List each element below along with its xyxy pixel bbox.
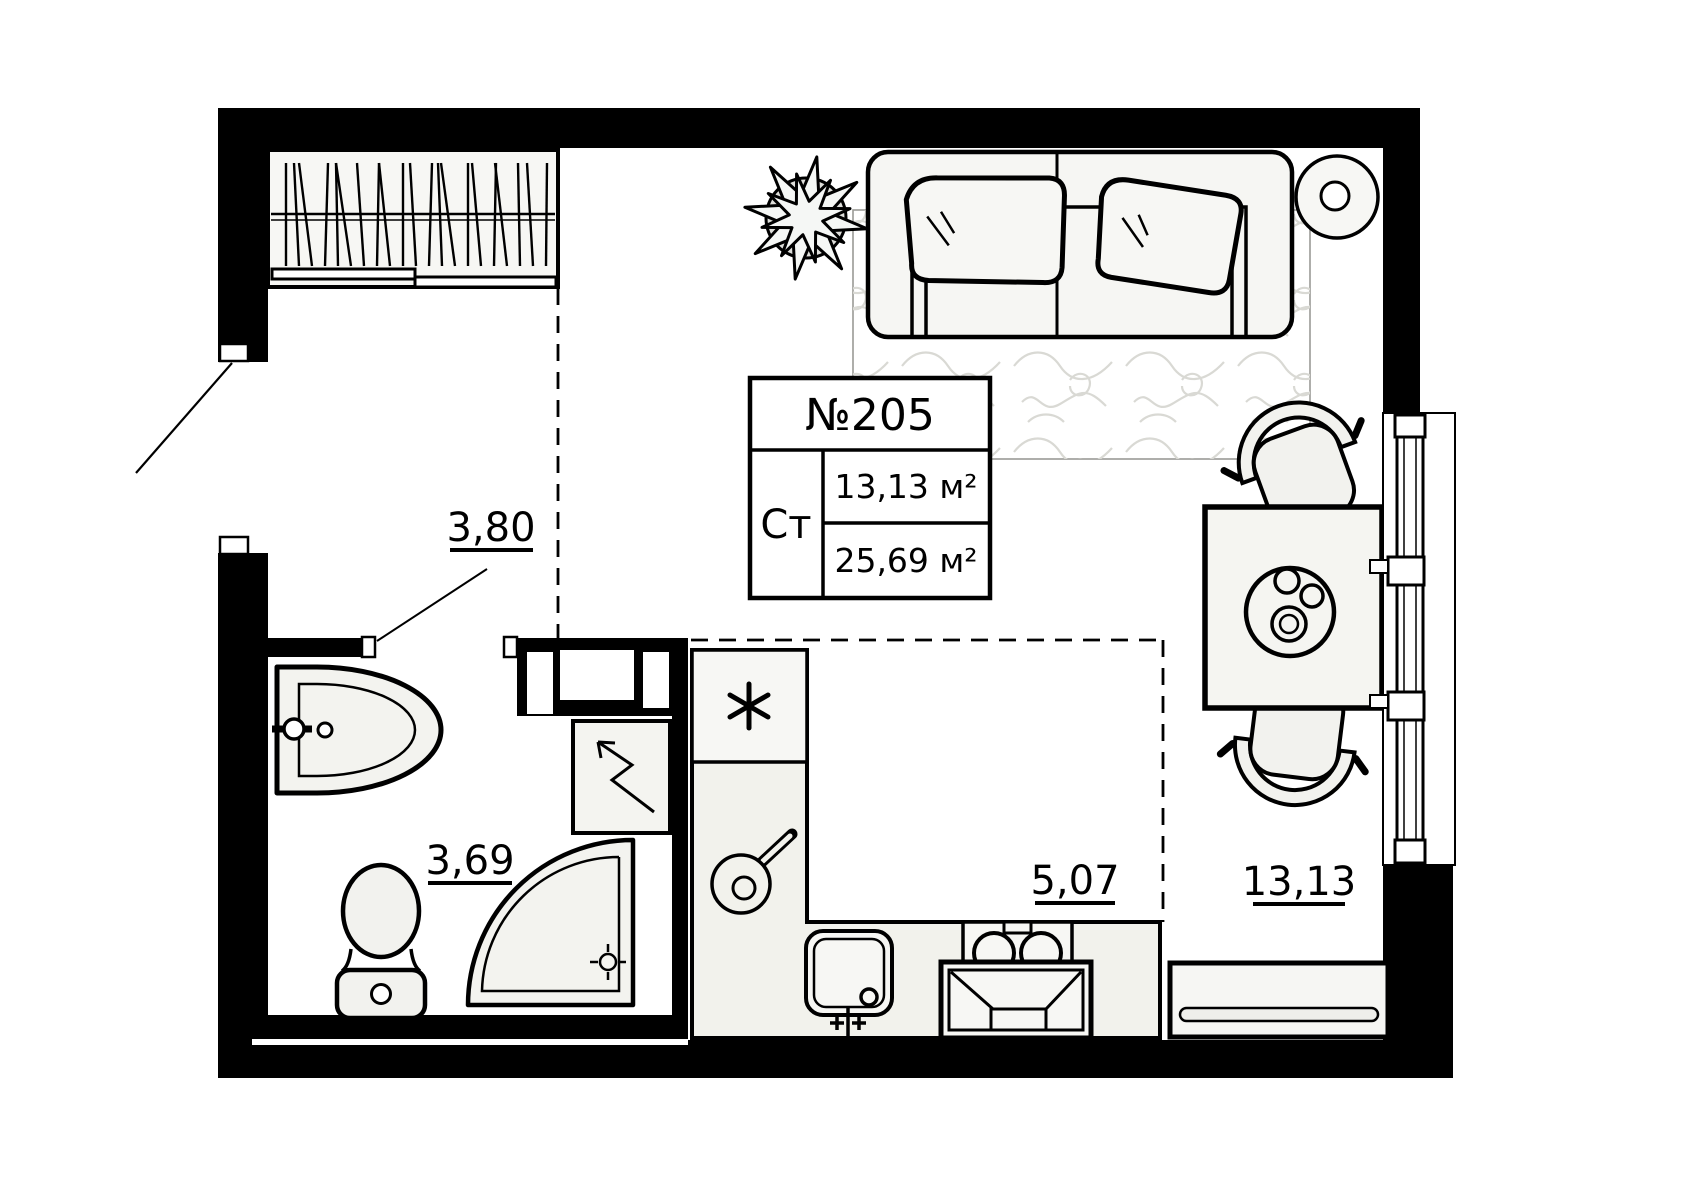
toilet bbox=[337, 865, 425, 1018]
living-area: 13,13 м² bbox=[834, 467, 977, 506]
title-block: №205 Ст 13,13 м² 25,69 м² bbox=[750, 378, 990, 598]
wardrobe-door-left bbox=[272, 269, 415, 279]
plate-icon bbox=[1246, 568, 1334, 656]
kitchen-area-label: 5,07 bbox=[1030, 858, 1119, 904]
total-area: 25,69 м² bbox=[834, 541, 977, 580]
wall-bathroom-bottom bbox=[252, 1015, 688, 1039]
window bbox=[1370, 413, 1455, 865]
wall-bathroom-top bbox=[252, 638, 362, 657]
pillow-left bbox=[905, 171, 1069, 290]
wall-top bbox=[218, 108, 1420, 148]
living-area-label: 13,13 bbox=[1242, 859, 1357, 905]
window-mullion-upper bbox=[1388, 557, 1424, 585]
bath-door-jamb-right bbox=[504, 637, 517, 657]
tv-stand-handle bbox=[1180, 1008, 1378, 1021]
bathroom-area-label: 3,69 bbox=[425, 838, 514, 884]
unit-number: №205 bbox=[805, 390, 935, 441]
wardrobe-door-right bbox=[415, 277, 556, 287]
pillow-right bbox=[1097, 179, 1243, 295]
sink-drain bbox=[861, 989, 877, 1005]
wall-bathroom-right bbox=[672, 714, 688, 1019]
sofa bbox=[868, 152, 1292, 337]
oven bbox=[941, 962, 1091, 1038]
washing-machine bbox=[573, 721, 670, 833]
hallway-area-label: 3,80 bbox=[446, 505, 535, 551]
wall-seam bbox=[252, 1039, 688, 1045]
entry-door-jamb-bottom bbox=[220, 537, 248, 554]
wardrobe bbox=[268, 150, 558, 287]
wall-bottom bbox=[218, 1040, 1383, 1078]
wall-right-lower bbox=[1383, 865, 1453, 1078]
unit-type: Ст bbox=[760, 502, 811, 548]
dining-table bbox=[1205, 507, 1382, 708]
window-mullion-lower bbox=[1388, 692, 1424, 720]
tv-stand bbox=[1170, 963, 1388, 1037]
bath-door-jamb-left bbox=[362, 637, 375, 657]
side-table bbox=[1296, 156, 1378, 238]
entry-door-jamb-top bbox=[220, 344, 248, 361]
floor-plan: №205 Ст 13,13 м² 25,69 м² 3,80 3,69 5,07… bbox=[0, 0, 1683, 1190]
wall-left-lower bbox=[218, 553, 268, 1078]
stove bbox=[941, 922, 1091, 1038]
wall-left-upper bbox=[218, 108, 268, 362]
wall-right-upper bbox=[1383, 148, 1420, 413]
